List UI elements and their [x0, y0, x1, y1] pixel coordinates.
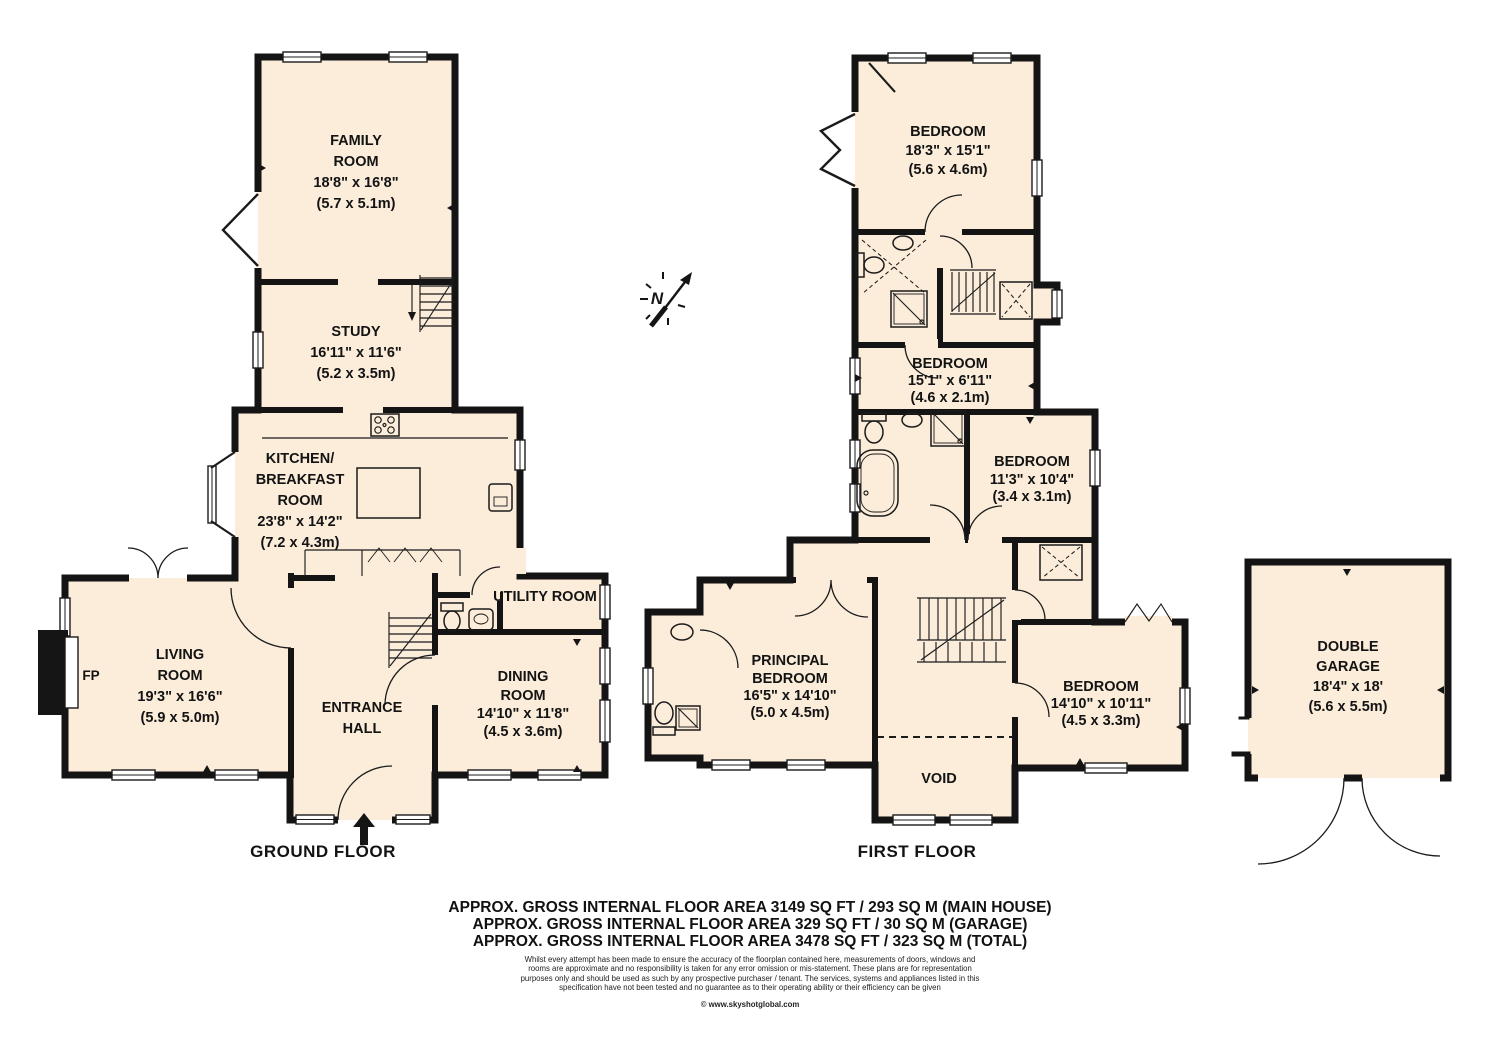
family-room-label2: ROOM — [333, 154, 378, 170]
disclaimer-line: purposes only and should be used as such… — [0, 974, 1500, 984]
disclaimer: Whilst every attempt has been made to en… — [0, 955, 1500, 993]
garage-dims-ft: 18'4" x 18' — [1313, 679, 1383, 695]
bedroom-top-dims-ft: 18'3" x 15'1" — [905, 143, 990, 159]
study-dims-m: (5.2 x 3.5m) — [317, 366, 396, 382]
first-floor-caption: FIRST FLOOR — [858, 842, 977, 861]
dining-room-dims-ft: 14'10" x 11'8" — [477, 706, 569, 722]
garage-label: DOUBLE — [1317, 639, 1379, 655]
floor-area-main-house: APPROX. GROSS INTERNAL FLOOR AREA 3149 S… — [0, 899, 1500, 916]
ground-floor-plan: FAMILY ROOM 18'8" x 16'8" (5.7 x 5.1m) S… — [38, 52, 610, 861]
bedroom-top-dims-m: (5.6 x 4.6m) — [909, 162, 988, 178]
floor-area-total: APPROX. GROSS INTERNAL FLOOR AREA 3478 S… — [0, 933, 1500, 950]
bedroom-small-dims-m: (3.4 x 3.1m) — [993, 489, 1072, 505]
entrance-hall-label: ENTRANCE — [322, 700, 403, 716]
bedroom-small-label: BEDROOM — [994, 454, 1070, 470]
garage-door-arcs — [1258, 778, 1440, 864]
bedroom-middle-dims-m: (4.6 x 2.1m) — [911, 390, 990, 406]
floorplan-page: FAMILY ROOM 18'8" x 16'8" (5.7 x 5.1m) S… — [0, 0, 1500, 1060]
principal-bedroom-dims-ft: 16'5" x 14'10" — [743, 688, 836, 704]
bedroom-right-dims-ft: 14'10" x 10'11" — [1051, 696, 1151, 712]
ground-floor-caption: GROUND FLOOR — [250, 842, 396, 861]
kitchen-dims-ft: 23'8" x 14'2" — [257, 514, 342, 530]
compass-north-label: N — [651, 289, 664, 308]
kitchen-label2: BREAKFAST — [256, 472, 345, 488]
living-room-label: LIVING — [156, 647, 204, 663]
garage-plan: DOUBLE GARAGE 18'4" x 18' (5.6 x 5.5m) — [1234, 562, 1448, 864]
principal-bedroom-label: PRINCIPAL — [751, 653, 828, 669]
study-dims-ft: 16'11" x 11'6" — [310, 345, 402, 361]
floor-area-garage: APPROX. GROSS INTERNAL FLOOR AREA 329 SQ… — [0, 916, 1500, 933]
disclaimer-line: Whilst every attempt has been made to en… — [0, 955, 1500, 965]
kitchen-label: KITCHEN/ — [266, 451, 334, 467]
family-room-dims-m: (5.7 x 5.1m) — [317, 196, 396, 212]
principal-bedroom-label2: BEDROOM — [752, 671, 828, 687]
bedroom-small-dims-ft: 11'3" x 10'4" — [990, 472, 1074, 488]
bedroom-middle-label: BEDROOM — [912, 356, 988, 372]
compass-rose-icon: N — [640, 272, 692, 326]
dining-room-label2: ROOM — [500, 688, 545, 704]
kitchen-dims-m: (7.2 x 4.3m) — [261, 535, 340, 551]
garage-dims-m: (5.6 x 5.5m) — [1309, 699, 1388, 715]
entrance-hall-label2: HALL — [343, 721, 382, 737]
utility-room-label: UTILITY ROOM — [493, 589, 597, 605]
bedroom-right-label: BEDROOM — [1063, 679, 1139, 695]
first-floor-plan: BEDROOM 18'3" x 15'1" (5.6 x 4.6m) BEDRO… — [643, 53, 1190, 861]
disclaimer-line: specification have not been tested and n… — [0, 983, 1500, 993]
disclaimer-line: rooms are approximate and no responsibil… — [0, 964, 1500, 974]
dining-room-dims-m: (4.5 x 3.6m) — [484, 724, 563, 740]
bedroom-top-label: BEDROOM — [910, 124, 986, 140]
garage-label2: GARAGE — [1316, 659, 1380, 675]
copyright: © www.skyshotglobal.com — [0, 1000, 1500, 1009]
family-room-label: FAMILY — [330, 133, 382, 149]
bedroom-middle-dims-ft: 15'1" x 6'11" — [908, 373, 992, 389]
fireplace-label: FP — [82, 668, 99, 683]
footer: APPROX. GROSS INTERNAL FLOOR AREA 3149 S… — [0, 899, 1500, 1009]
living-room-dims-m: (5.9 x 5.0m) — [141, 710, 220, 726]
kitchen-label3: ROOM — [277, 493, 322, 509]
family-room-dims-ft: 18'8" x 16'8" — [313, 175, 398, 191]
study-label: STUDY — [331, 324, 380, 340]
living-room-dims-ft: 19'3" x 16'6" — [137, 689, 222, 705]
dining-room-label: DINING — [498, 669, 549, 685]
principal-bedroom-dims-m: (5.0 x 4.5m) — [751, 705, 830, 721]
living-room-label2: ROOM — [157, 668, 202, 684]
fireplace-icon — [38, 630, 78, 715]
void-label: VOID — [921, 771, 956, 787]
bedroom-right-dims-m: (4.5 x 3.3m) — [1062, 713, 1141, 729]
